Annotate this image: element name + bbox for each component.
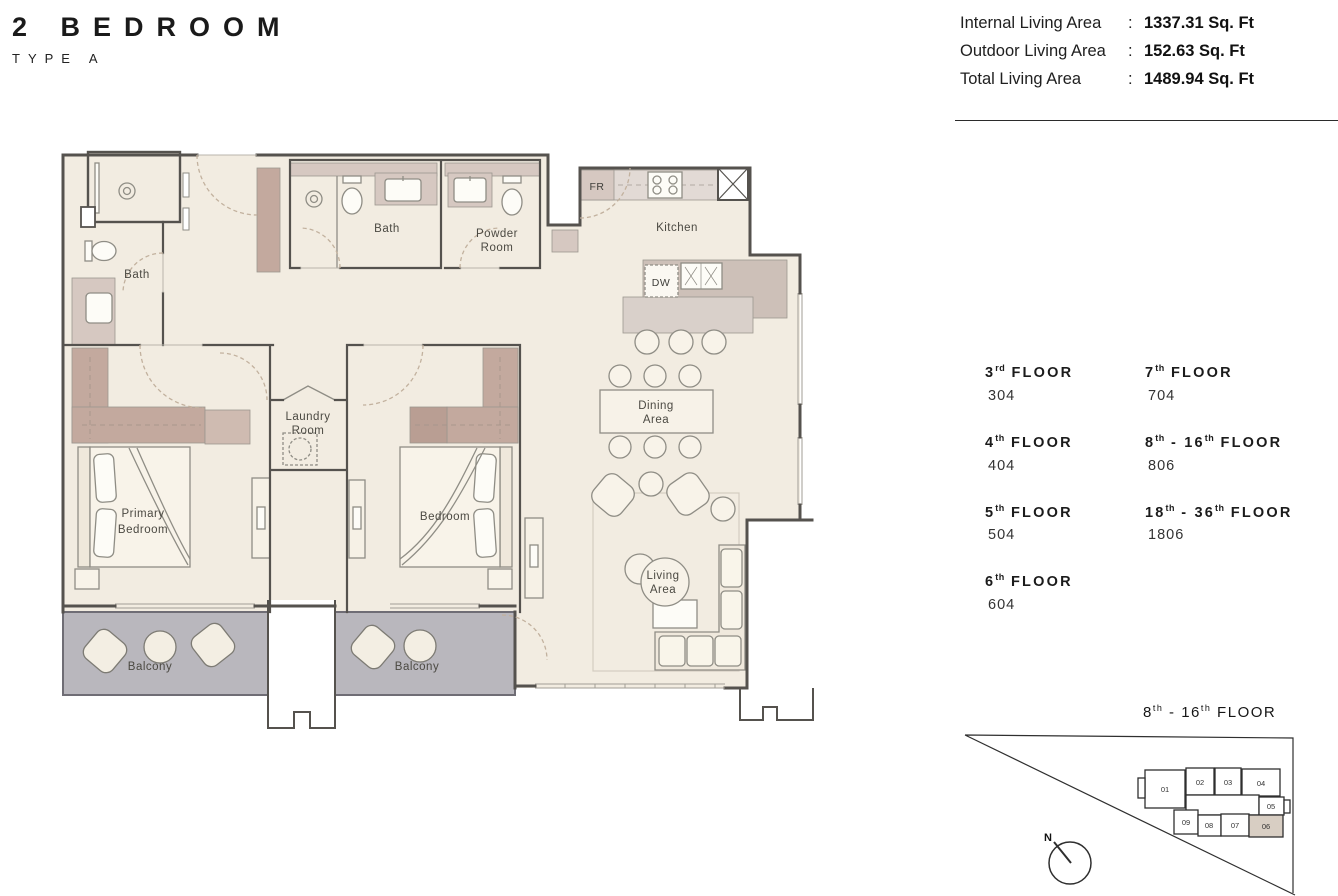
powder-sink <box>454 178 486 202</box>
floor-plan: Bath Bath Powder Room Kitchen FR DW Laun… <box>55 145 815 735</box>
living-area-label-2: Area <box>650 584 676 596</box>
area-label: Outdoor Living Area <box>960 42 1128 61</box>
colon: : <box>1128 70 1144 89</box>
page-subtitle: TYPE A <box>12 51 293 66</box>
primary-bedroom-label-2: Bedroom <box>118 524 168 536</box>
shower-rail <box>95 163 99 213</box>
unit-number: 1806 <box>1148 527 1293 543</box>
bath1-label: Bath <box>124 269 150 281</box>
area-label: Total Living Area <box>960 70 1128 89</box>
sofa-cushion <box>687 636 713 666</box>
north-label: N <box>1044 832 1052 844</box>
unit-01-label: 01 <box>1161 785 1169 794</box>
pillow <box>93 508 116 557</box>
toilet-tank <box>85 241 92 261</box>
floor-list-left-column: 3rd FLOOR 304 4th FLOOR 404 5th FLOOR 50… <box>985 363 1073 642</box>
page-title: 2 BEDROOM <box>12 12 293 43</box>
pillow <box>93 453 116 502</box>
dining-chair <box>609 365 631 387</box>
toilet-bowl <box>92 242 116 261</box>
bath1-sink <box>86 293 112 323</box>
primary-bedroom-label-1: Primary <box>121 508 164 520</box>
nightstand <box>75 569 99 589</box>
colon: : <box>1128 42 1144 61</box>
dining-chair <box>609 436 631 458</box>
unit-02-label: 02 <box>1196 778 1204 787</box>
dining-area-label-1: Dining <box>638 400 674 412</box>
side-table <box>639 472 663 496</box>
dining-chair <box>679 436 701 458</box>
area-label: Internal Living Area <box>960 14 1128 33</box>
kitchen-label: Kitchen <box>656 222 698 234</box>
unit-08-label: 08 <box>1205 821 1213 830</box>
floor-row-5: 5th FLOOR 504 <box>985 503 1073 544</box>
fridge-label: FR <box>590 181 605 193</box>
floorplan-page: 2 BEDROOM TYPE A Internal Living Area : … <box>0 0 1338 896</box>
sofa-cushion <box>659 636 685 666</box>
bar-stool <box>669 330 693 354</box>
pillow <box>473 453 496 502</box>
bath2-sink <box>385 179 421 201</box>
unit-number: 304 <box>988 388 1073 404</box>
coffee-table <box>641 558 689 606</box>
toilet-tank <box>503 176 521 183</box>
area-row-outdoor: Outdoor Living Area : 152.63 Sq. Ft <box>960 42 1332 61</box>
balcony-right-label: Balcony <box>395 661 439 673</box>
floor-row-8-16: 8th - 16th FLOOR 806 <box>1145 433 1293 474</box>
unit-04-label: 04 <box>1257 779 1265 788</box>
bath2-label: Bath <box>374 223 400 235</box>
bedroom-label: Bedroom <box>420 511 470 523</box>
divider-line <box>955 120 1338 121</box>
side-table <box>711 497 735 521</box>
pillow <box>473 508 496 557</box>
bed-headboard <box>78 447 90 567</box>
bottom-right-bay <box>740 688 813 720</box>
area-value: 1337.31 Sq. Ft <box>1144 14 1332 33</box>
nightstand <box>488 569 512 589</box>
sofa-cushion <box>721 549 742 587</box>
sofa-cushion <box>721 591 742 629</box>
unit-07-label: 07 <box>1231 821 1239 830</box>
unit-03-label: 03 <box>1224 778 1232 787</box>
balcony-table <box>144 631 176 663</box>
area-row-total: Total Living Area : 1489.94 Sq. Ft <box>960 70 1332 89</box>
keyplan: 01 02 03 04 05 06 07 08 09 N <box>940 690 1338 896</box>
unit-number: 604 <box>988 597 1073 613</box>
balcony-left-label: Balcony <box>128 661 172 673</box>
unit-09-label: 09 <box>1182 818 1190 827</box>
floor-row-4: 4th FLOOR 404 <box>985 433 1073 474</box>
unit-number: 806 <box>1148 458 1293 474</box>
floor-list-right-column: 7th FLOOR 704 8th - 16th FLOOR 806 18th … <box>1145 363 1293 572</box>
stove <box>648 172 682 198</box>
colon: : <box>1128 14 1144 33</box>
laundry-label-2: Room <box>292 425 325 437</box>
area-value: 1489.94 Sq. Ft <box>1144 70 1332 89</box>
compass-needle <box>1054 842 1071 863</box>
dishwasher-label: DW <box>652 277 671 289</box>
bar-stool <box>635 330 659 354</box>
unit-05-label: 05 <box>1267 802 1275 811</box>
unit-number: 704 <box>1148 388 1293 404</box>
sofa-cushion <box>715 636 741 666</box>
header: 2 BEDROOM TYPE A <box>12 12 293 66</box>
island-base <box>623 297 753 333</box>
entry-closet <box>257 168 280 272</box>
toilet-tank <box>343 176 361 183</box>
dining-area-label-2: Area <box>643 414 669 426</box>
hall-closet <box>552 230 578 252</box>
area-row-internal: Internal Living Area : 1337.31 Sq. Ft <box>960 14 1332 33</box>
floor-row-6: 6th FLOOR 604 <box>985 572 1073 613</box>
primary-wardrobe-end <box>205 410 250 444</box>
balcony-table <box>404 630 436 662</box>
dining-chair <box>679 365 701 387</box>
toilet-bowl <box>342 188 362 214</box>
area-value: 152.63 Sq. Ft <box>1144 42 1332 61</box>
bed-headboard <box>500 447 512 567</box>
laundry-label-1: Laundry <box>285 411 330 423</box>
unit-06-label: 06 <box>1262 822 1270 831</box>
powder-room-label-2: Room <box>481 242 514 254</box>
compass: N <box>1044 832 1091 884</box>
area-summary: Internal Living Area : 1337.31 Sq. Ft Ou… <box>960 14 1332 98</box>
unit-number: 404 <box>988 458 1073 474</box>
dining-chair <box>644 365 666 387</box>
powder-room-label-1: Powder <box>476 228 518 240</box>
unit-number: 504 <box>988 527 1073 543</box>
living-area-label-1: Living <box>646 570 679 582</box>
island-sink <box>681 263 722 289</box>
floor-row-7: 7th FLOOR 704 <box>1145 363 1293 404</box>
toilet-bowl <box>502 189 522 215</box>
floor-row-3: 3rd FLOOR 304 <box>985 363 1073 404</box>
floor-row-18-36: 18th - 36th FLOOR 1806 <box>1145 503 1293 544</box>
central-bay <box>268 600 335 728</box>
bar-stool <box>702 330 726 354</box>
dining-chair <box>644 436 666 458</box>
